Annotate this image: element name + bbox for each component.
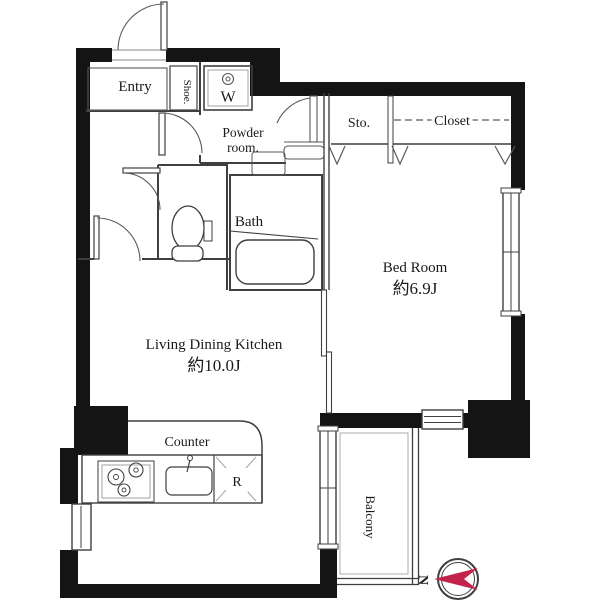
wall-right-lower <box>511 314 525 415</box>
room-label-counter: Counter <box>164 435 209 450</box>
compass-north-label: N <box>415 575 430 585</box>
wall-sto-closet-divider <box>388 96 393 163</box>
room-label-powder-2: room. <box>227 140 259 155</box>
bathtub-icon <box>230 231 318 284</box>
wall-block-kitchen <box>74 406 128 455</box>
room-label-balcony: Balcony <box>363 495 378 539</box>
folding-door-icon <box>329 146 345 164</box>
wall-top-left <box>76 48 268 62</box>
room-label-shoe: Shoe. <box>181 80 193 105</box>
door-arc <box>118 4 164 50</box>
door-arc <box>162 113 202 153</box>
sink-icon <box>166 456 212 496</box>
ldk-balcony-window <box>318 426 338 549</box>
room-label-powder-1: Powder <box>222 125 264 140</box>
refrigerator-label: R <box>232 475 242 490</box>
room-label-ldk: Living Dining Kitchen <box>146 337 283 353</box>
interior-walls <box>78 62 511 290</box>
room-label-bedroom: Bed Room <box>383 260 448 276</box>
room-size-ldk: 約10.0J <box>187 356 241 375</box>
bedroom-east-window <box>501 188 521 316</box>
wall-left-lower-a <box>60 448 78 504</box>
toilet-door <box>123 168 160 210</box>
windows <box>72 188 521 550</box>
compass-icon: N <box>415 559 478 599</box>
bedroom-sliding-door <box>322 290 332 413</box>
room-label-storage: Sto. <box>348 116 370 131</box>
wall-bedroom-west <box>324 93 329 290</box>
powder-cabinet-door <box>277 96 324 159</box>
floor-plan: N Entry Shoe. W Powder room. Sto. Closet… <box>0 0 600 600</box>
wall-block-bottom-right <box>468 400 530 458</box>
room-size-bedroom: 約6.9J <box>393 279 438 298</box>
washer-label: W <box>220 89 236 106</box>
room-label-bath: Bath <box>235 214 264 230</box>
entry-door <box>118 2 167 50</box>
wall-top-right <box>268 82 525 96</box>
room-label-entry: Entry <box>118 79 152 95</box>
room-labels: Entry Shoe. W Powder room. Sto. Closet B… <box>118 79 470 539</box>
floor-plan-canvas: N Entry Shoe. W Powder room. Sto. Closet… <box>0 0 600 600</box>
bedroom-south-window <box>422 410 463 429</box>
stove-icon <box>98 461 154 502</box>
outer-walls <box>60 48 530 598</box>
folding-door-icon <box>392 146 408 164</box>
door-arc <box>277 98 310 123</box>
room-label-closet: Closet <box>434 114 470 129</box>
door-arc <box>123 173 160 210</box>
wall-right-upper <box>511 82 525 190</box>
ldk-door <box>94 216 140 261</box>
entry-door-opening <box>112 46 166 64</box>
door-arc <box>97 218 140 261</box>
wall-stub-ldk-balcony <box>320 546 337 588</box>
wall-bottom <box>60 584 337 598</box>
toilet-icon <box>172 206 212 261</box>
powder-room-door <box>159 113 202 155</box>
kitchen-west-window <box>72 504 91 550</box>
